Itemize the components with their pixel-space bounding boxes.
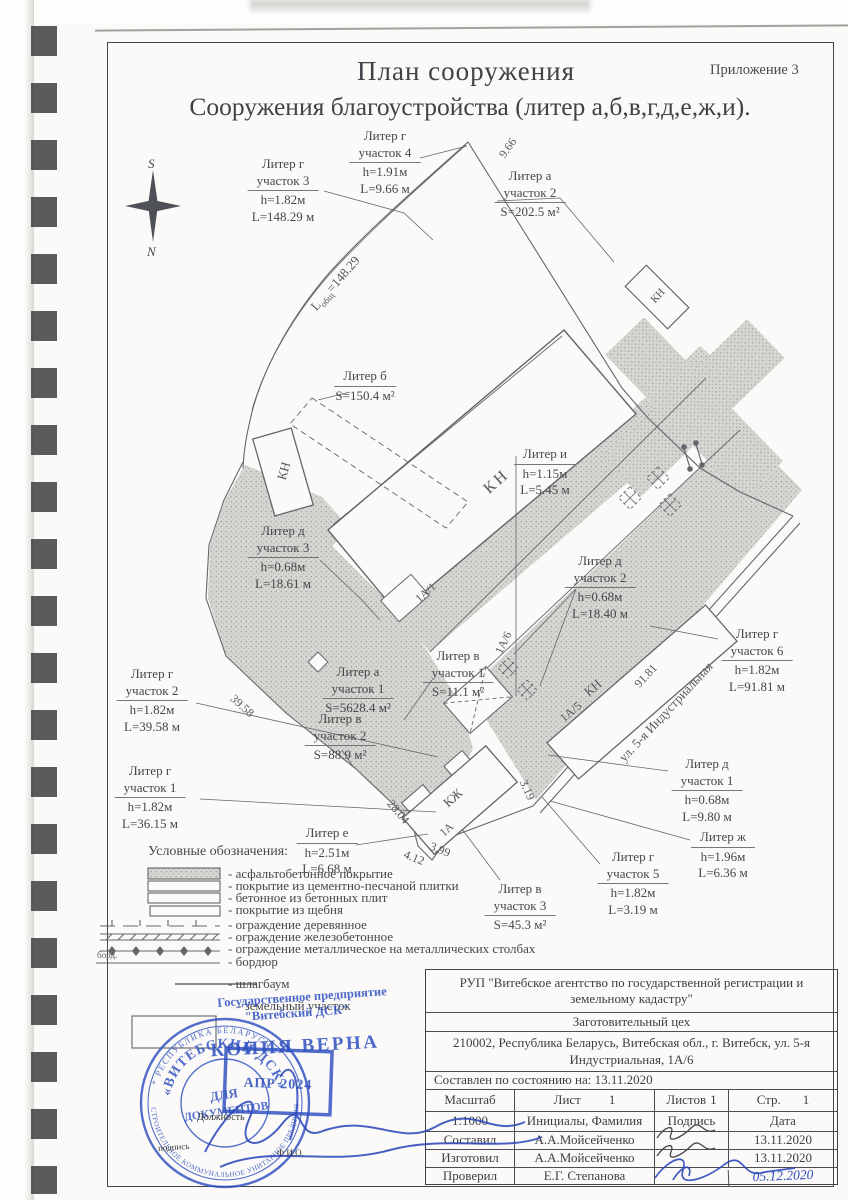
sheets-value: 1 xyxy=(710,1092,717,1108)
annotation-title: Литер д участок 3 xyxy=(248,523,319,558)
compass-icon xyxy=(125,170,181,242)
annotation-liter-g-uch6: Литер г участок 6h=1.82м L=91.81 м xyxy=(722,626,793,696)
annotation-liter-v-uch1: Литер в участок 1S=11.1 м² xyxy=(423,648,494,701)
annotation-detail: h=1.82м L=36.15 м xyxy=(115,799,186,832)
annotation-detail: h=0.68м L=18.40 м xyxy=(565,589,636,622)
legend-item: - бордюр xyxy=(228,954,278,970)
annotation-liter-g-uch1: Литер г участок 1h=1.82м L=36.15 м xyxy=(115,763,186,833)
annotation-title: Литер б xyxy=(334,368,396,387)
sheets-label: Листов xyxy=(666,1092,706,1108)
annotation-detail: h=1.82м L=91.81 м xyxy=(722,662,793,695)
annotation-detail: h=1.82м L=39.58 м xyxy=(117,702,188,735)
legend-heading: Условные обозначения: xyxy=(148,844,288,860)
date-stamp-text: АПР 2024 xyxy=(243,1076,312,1093)
page-value: 1 xyxy=(803,1092,810,1108)
annotation-liter-i: Литер иh=1.15м L=5.45 м xyxy=(514,446,576,499)
annotation-liter-g-uch2: Литер г участок 2h=1.82м L=39.58 м xyxy=(117,666,188,736)
annotation-liter-d-uch3: Литер д участок 3h=0.68м L=18.61 м xyxy=(248,523,319,593)
annotation-title: Литер а участок 1 xyxy=(323,664,394,699)
annotation-title: Литер г участок 6 xyxy=(722,626,793,661)
annotation-liter-a-uch2: Литер а участок 2S=202.5 м² xyxy=(495,168,566,221)
annotation-liter-zh: Литер жh=1.96м L=6.36 м xyxy=(691,829,755,882)
sheets-cell: Листов1 xyxy=(654,1090,728,1111)
annotation-liter-b: Литер бS=150.4 м² xyxy=(334,368,396,404)
annotation-detail: S=202.5 м² xyxy=(495,204,566,221)
annotation-title: Литер г участок 1 xyxy=(115,763,186,798)
annotation-detail: h=0.68м L=18.61 м xyxy=(248,559,319,592)
annotation-title: Литер в участок 3 xyxy=(485,881,556,916)
annotation-detail: h=1.15м L=5.45 м xyxy=(514,466,576,499)
annotation-title: Литер г участок 4 xyxy=(350,128,421,163)
annotation-liter-v-uch3: Литер в участок 3S=45.3 м² xyxy=(485,881,556,934)
annotation-detail: S=88.9 м² xyxy=(305,747,376,764)
annotation-title: Литер г участок 2 xyxy=(117,666,188,701)
annotation-detail: h=1.91м L=9.66 м xyxy=(350,164,421,197)
annotation-detail: S=150.4 м² xyxy=(334,388,396,405)
annotation-title: Литер е xyxy=(297,825,358,844)
annotation-title: Литер д участок 2 xyxy=(565,553,636,588)
annotation-liter-g-uch3: Литер г участок 3h=1.82м L=148.29 м xyxy=(248,156,319,226)
compass-north-label: N xyxy=(146,244,157,259)
annotation-title: Литер д участок 1 xyxy=(672,756,743,791)
annotation-liter-v-uch2: Литер в участок 2S=88.9 м² xyxy=(305,711,376,764)
legend-item: - покрытие из щебня xyxy=(228,902,343,918)
annotation-title: Литер а участок 2 xyxy=(495,168,566,203)
annotation-title: Литер г участок 3 xyxy=(248,156,319,191)
page-label: Стр. xyxy=(757,1092,781,1108)
annotation-title: Литер в участок 2 xyxy=(305,711,376,746)
table-signatures-ink xyxy=(645,1122,845,1186)
annotation-liter-g-uch4: Литер г участок 4h=1.91м L=9.66 м xyxy=(350,128,421,198)
annotation-title: Литер в участок 1 xyxy=(423,648,494,683)
legend-bord-note: борд. xyxy=(97,950,117,960)
annotation-liter-a-uch1: Литер а участок 1S=5628.4 м² xyxy=(323,664,394,717)
annotation-liter-g-uch5: Литер г участок 5h=1.82м L=3.19 м xyxy=(598,849,669,919)
annotation-detail: h=1.82м L=148.29 м xyxy=(248,192,319,225)
annotation-detail: h=0.68м L=9.80 м xyxy=(672,792,743,825)
annotation-detail: h=1.96м L=6.36 м xyxy=(691,849,755,882)
sheet-value: 1 xyxy=(609,1092,616,1108)
annotation-detail: S=11.1 м² xyxy=(423,684,494,701)
compass-south-label: S xyxy=(148,156,155,171)
page-cell: Стр.1 xyxy=(728,1090,837,1111)
annotation-liter-d-uch1: Литер д участок 1h=0.68м L=9.80 м xyxy=(672,756,743,826)
annotation-title: Литер и xyxy=(514,446,576,465)
annotation-title: Литер г участок 5 xyxy=(598,849,669,884)
annotation-detail: S=45.3 м² xyxy=(485,917,556,934)
annotation-liter-d-uch2: Литер д участок 2h=0.68м L=18.40 м xyxy=(565,553,636,623)
scanned-document-page: План сооружения Приложение 3 Сооружения … xyxy=(0,0,848,1200)
fio-label: Ф.И.О. xyxy=(277,1148,304,1158)
position-label: Должность xyxy=(197,1112,245,1123)
annotation-detail: h=1.82м L=3.19 м xyxy=(598,885,669,918)
annotation-title: Литер ж xyxy=(691,829,755,848)
